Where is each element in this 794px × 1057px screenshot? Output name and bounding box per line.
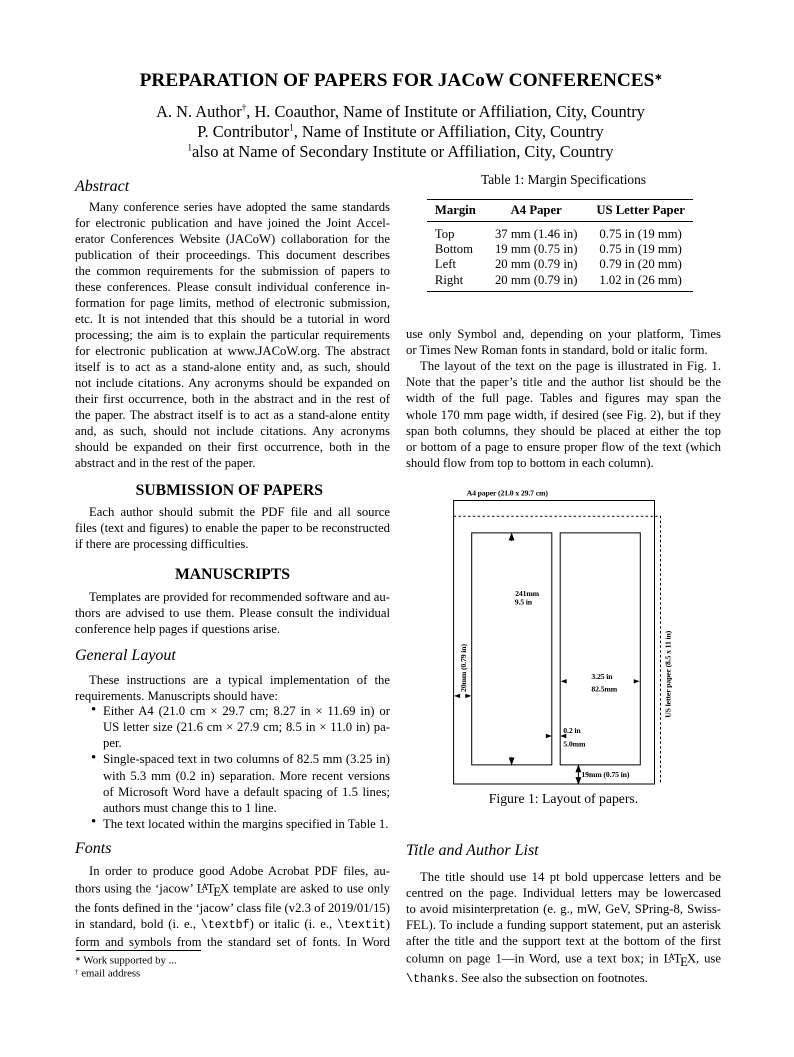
svg-text:20mm (0.79 in): 20mm (0.79 in) — [459, 644, 468, 692]
svg-text:3.25 in: 3.25 in — [591, 672, 613, 681]
svg-text:US letter paper (8.5 x 11 in): US letter paper (8.5 x 11 in) — [663, 630, 672, 718]
svg-text:19mm (0.75 in): 19mm (0.75 in) — [581, 770, 629, 779]
svg-text:9.5 in: 9.5 in — [515, 598, 533, 607]
svg-text:0.2 in: 0.2 in — [563, 726, 581, 735]
svg-text:5.0mm: 5.0mm — [563, 739, 586, 748]
svg-text:82.5mm: 82.5mm — [591, 685, 617, 694]
svg-text:A4 paper (21.0 x 29.7 cm): A4 paper (21.0 x 29.7 cm) — [467, 488, 549, 497]
